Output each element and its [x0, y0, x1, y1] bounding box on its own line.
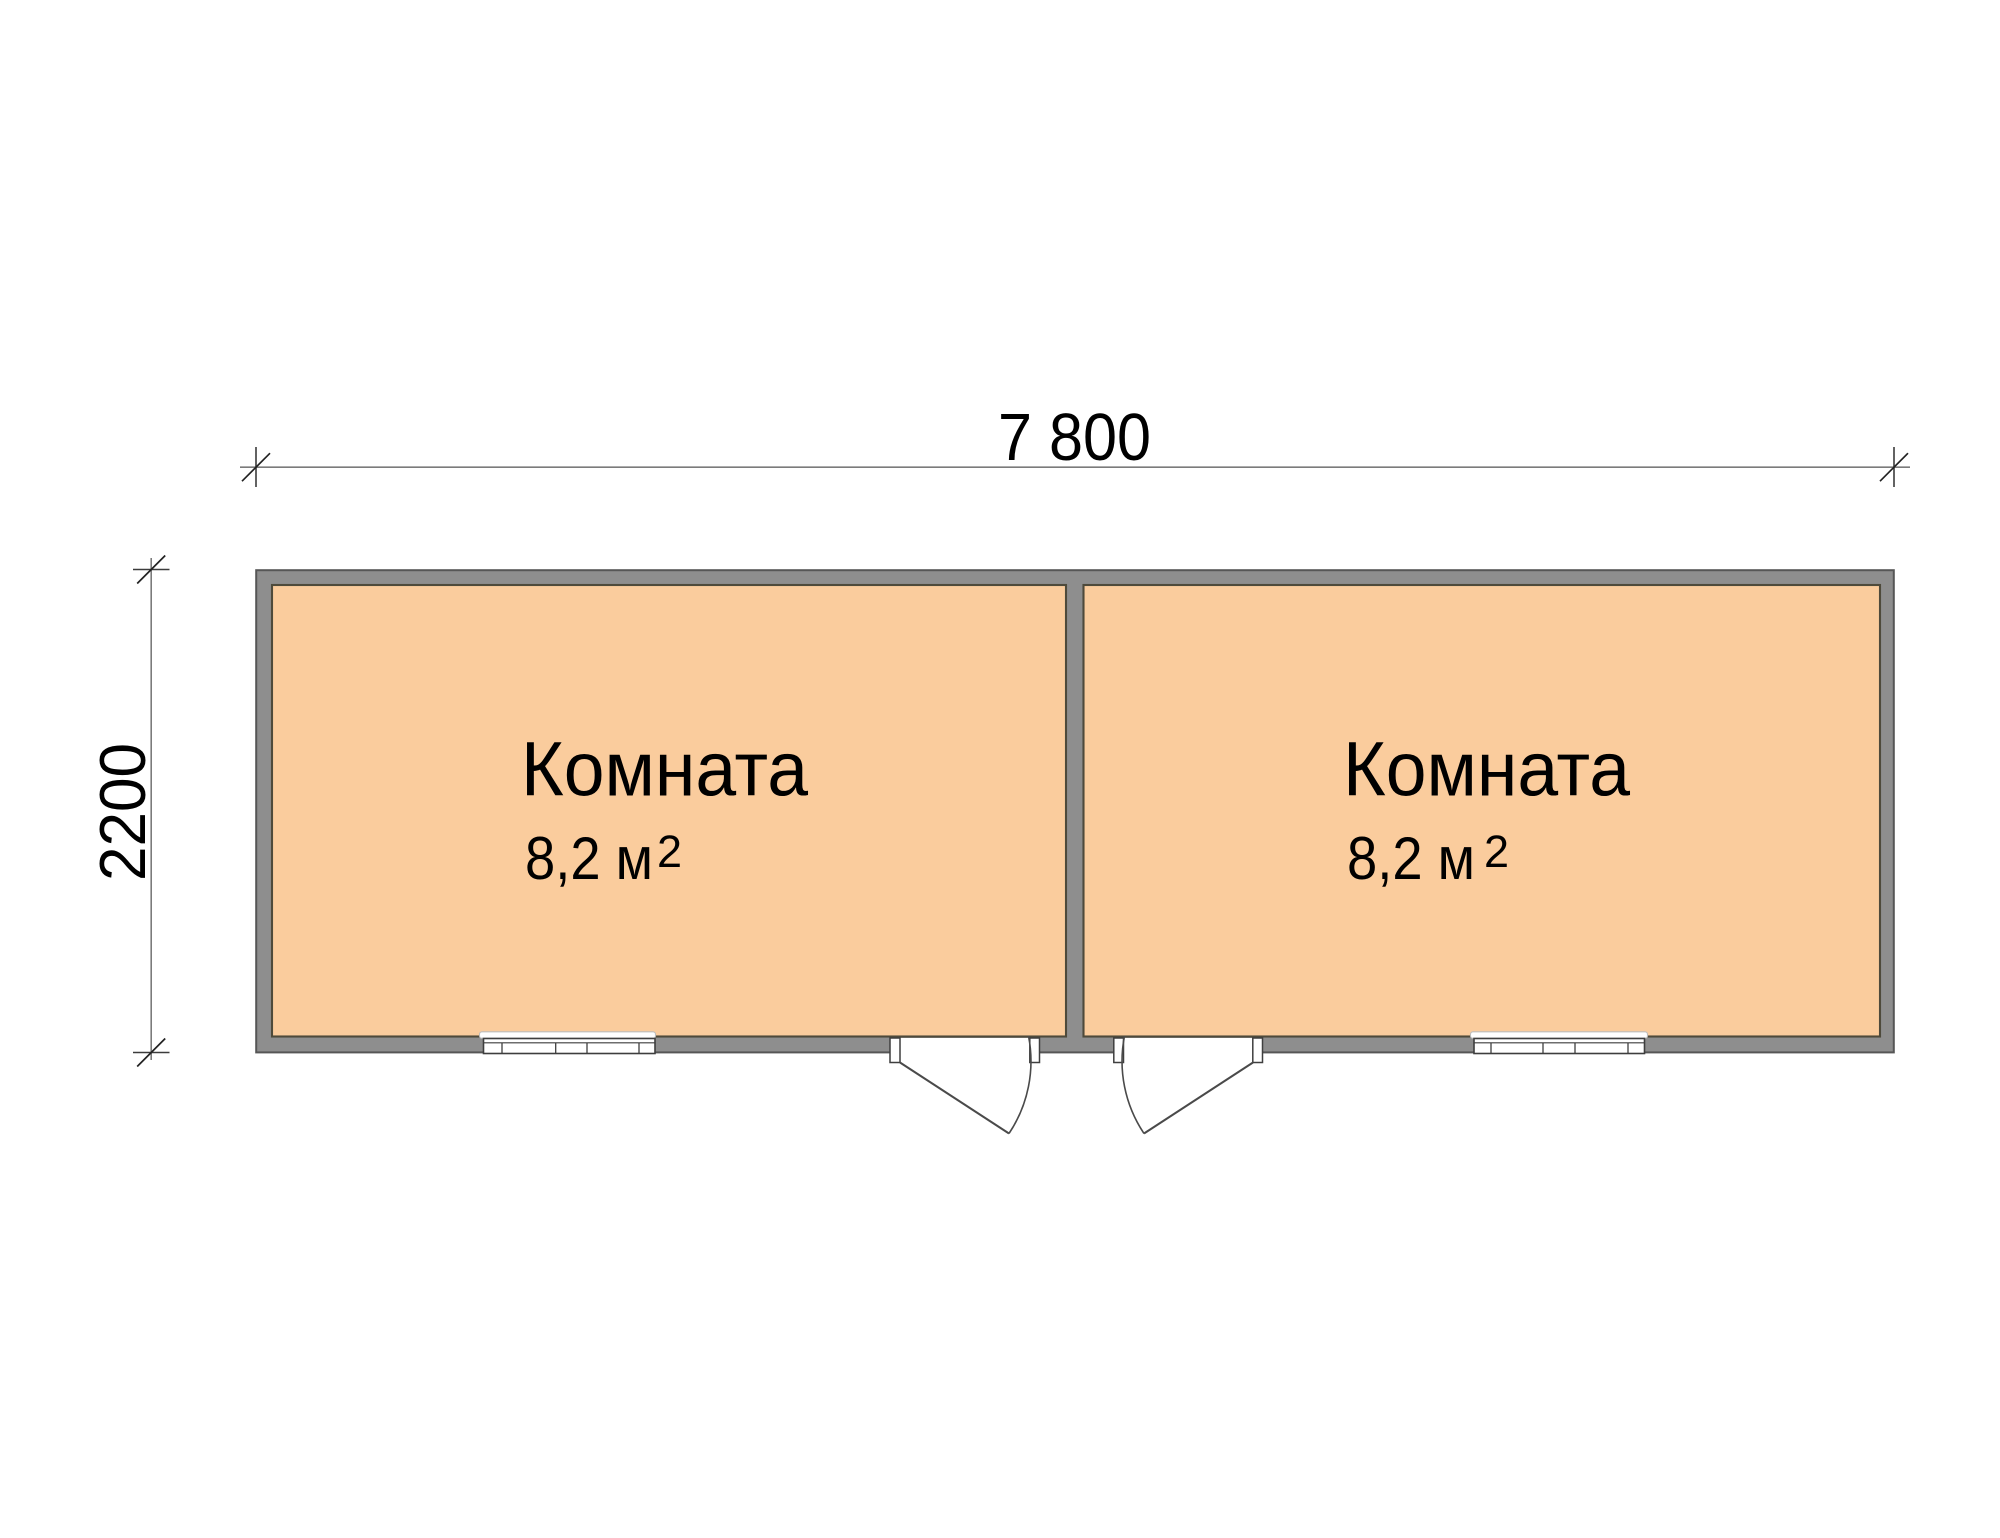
svg-text:2: 2	[657, 826, 682, 877]
svg-text:Комната: Комната	[521, 727, 808, 813]
svg-text:8,2 м: 8,2 м	[525, 825, 653, 892]
svg-text:8,2 м: 8,2 м	[1347, 825, 1475, 892]
svg-text:7 800: 7 800	[998, 400, 1151, 475]
svg-text:2: 2	[1484, 826, 1509, 877]
svg-text:2200: 2200	[86, 743, 159, 881]
svg-text:Комната: Комната	[1343, 727, 1630, 813]
